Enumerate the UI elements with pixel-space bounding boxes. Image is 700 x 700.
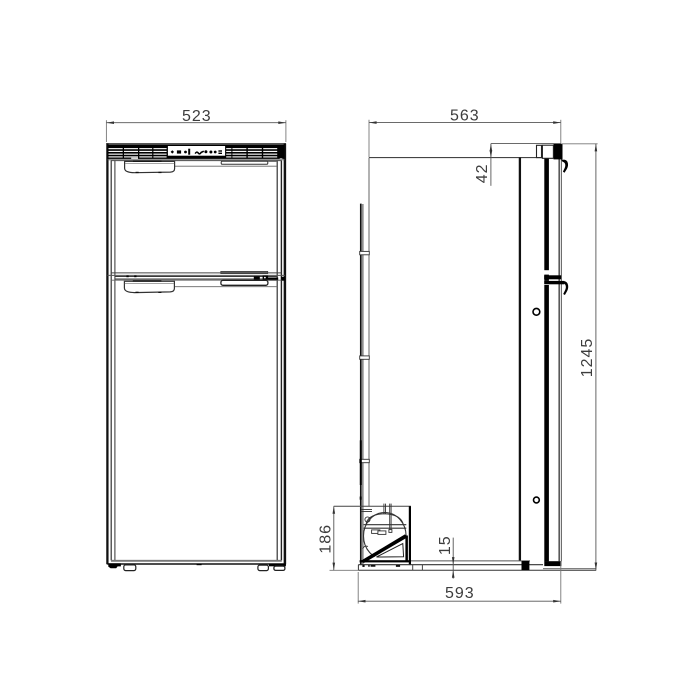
svg-text:15: 15 [437,535,454,555]
svg-text:42: 42 [474,164,491,184]
svg-text:563: 563 [450,108,480,125]
svg-text:186: 186 [318,524,335,554]
svg-text:523: 523 [182,108,212,125]
svg-text:1245: 1245 [579,338,596,378]
svg-text:593: 593 [445,585,475,602]
